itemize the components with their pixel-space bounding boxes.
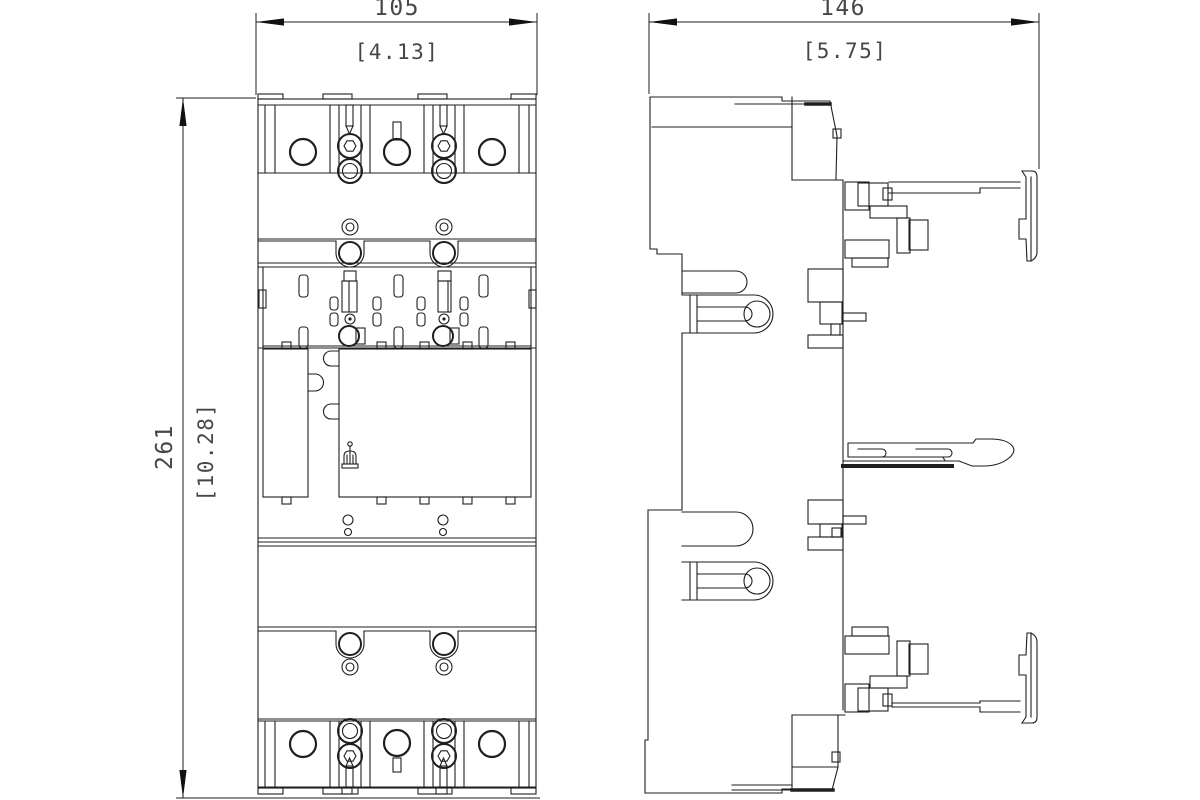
mounting-hole [744,568,770,594]
mounting-tab [323,788,352,794]
front-top-terminals [258,105,536,183]
mounting-tab [258,788,283,794]
arrowhead-right [509,18,537,25]
front-cover-plate [339,349,531,497]
terminal-hole [290,731,316,757]
front-mid-body [258,342,536,546]
side-din-clip-top [808,269,866,348]
cover-screw [342,659,358,675]
pivot-screw [339,242,361,264]
front-bottom-terminals [258,719,536,794]
side-view [645,97,1037,793]
mounting-tab [511,94,536,99]
technical-drawing-page: 105 [4.13] 146 [5.75] 261 [10.28] [0,0,1200,800]
terminal-hole [479,139,505,165]
pivot-screw [433,242,455,264]
side-mounting-lug-bottom [682,562,773,600]
side-terminal-bottom [845,627,928,712]
side-mounting-lug-top [682,295,773,333]
terminal-screw-head [909,644,928,674]
latch-detent [324,351,340,366]
side-bottom-cover [732,715,845,790]
terminal-screw-head [909,220,928,250]
pivot-screw [339,633,361,655]
arrowhead-left [256,18,284,25]
front-lower-band [258,627,536,721]
latch-detent [308,374,324,391]
arrowhead-bottom [179,770,186,798]
technical-drawing-canvas: 105 [4.13] 146 [5.75] 261 [10.28] [0,0,1200,800]
dim-width-mm: 105 [374,0,420,21]
toggle-handle [843,439,1014,466]
mounting-hole [744,301,770,327]
cover-screw [342,219,358,235]
terminal-screw-stack [338,105,362,183]
terminal-screw-stack [432,105,456,183]
pivot-screw [433,633,455,655]
dim-height-mm: 261 [152,424,178,470]
dimension-width: 105 [4.13] [256,0,537,95]
side-phase-barrier-bottom [892,633,1037,723]
front-vent-panel [258,267,536,348]
front-view [258,94,536,794]
front-body-outline [258,94,536,794]
terminal-hole [384,139,410,165]
side-phase-barrier-top [889,171,1037,261]
latch-detent [324,404,340,419]
dim-height-inch: [10.28] [194,402,218,501]
terminal-hole [479,731,505,757]
mounting-tab [418,788,447,794]
accessory-cover-left [263,349,308,497]
terminal-hole [290,139,316,165]
arrowhead-left [649,18,677,25]
front-upper-band [258,219,536,267]
cover-screw [436,219,452,235]
side-body-outline [645,97,832,793]
mounting-tab [418,94,447,99]
wiring-slot [682,271,747,293]
dimension-depth: 146 [5.75] [649,0,1039,169]
dim-depth-inch: [5.75] [803,39,888,63]
side-top-cover [650,97,843,180]
cover-screw [436,659,452,675]
dim-depth-mm: 146 [820,0,866,21]
arrowhead-right [1011,18,1039,25]
dimension-height: 261 [10.28] [152,98,540,798]
dim-width-inch: [4.13] [355,40,440,64]
wiring-slot [682,512,753,546]
mounting-tab [258,94,283,99]
mounting-tab [511,788,536,794]
mounting-tab [323,94,352,99]
terminal-screw-stack [338,719,362,794]
terminal-screw-stack [432,719,456,794]
arrowhead-top [179,98,186,126]
side-din-clip-bottom [808,500,866,550]
side-terminal-top [845,182,928,267]
terminal-hole [384,730,410,756]
interlock-lever [342,442,358,468]
